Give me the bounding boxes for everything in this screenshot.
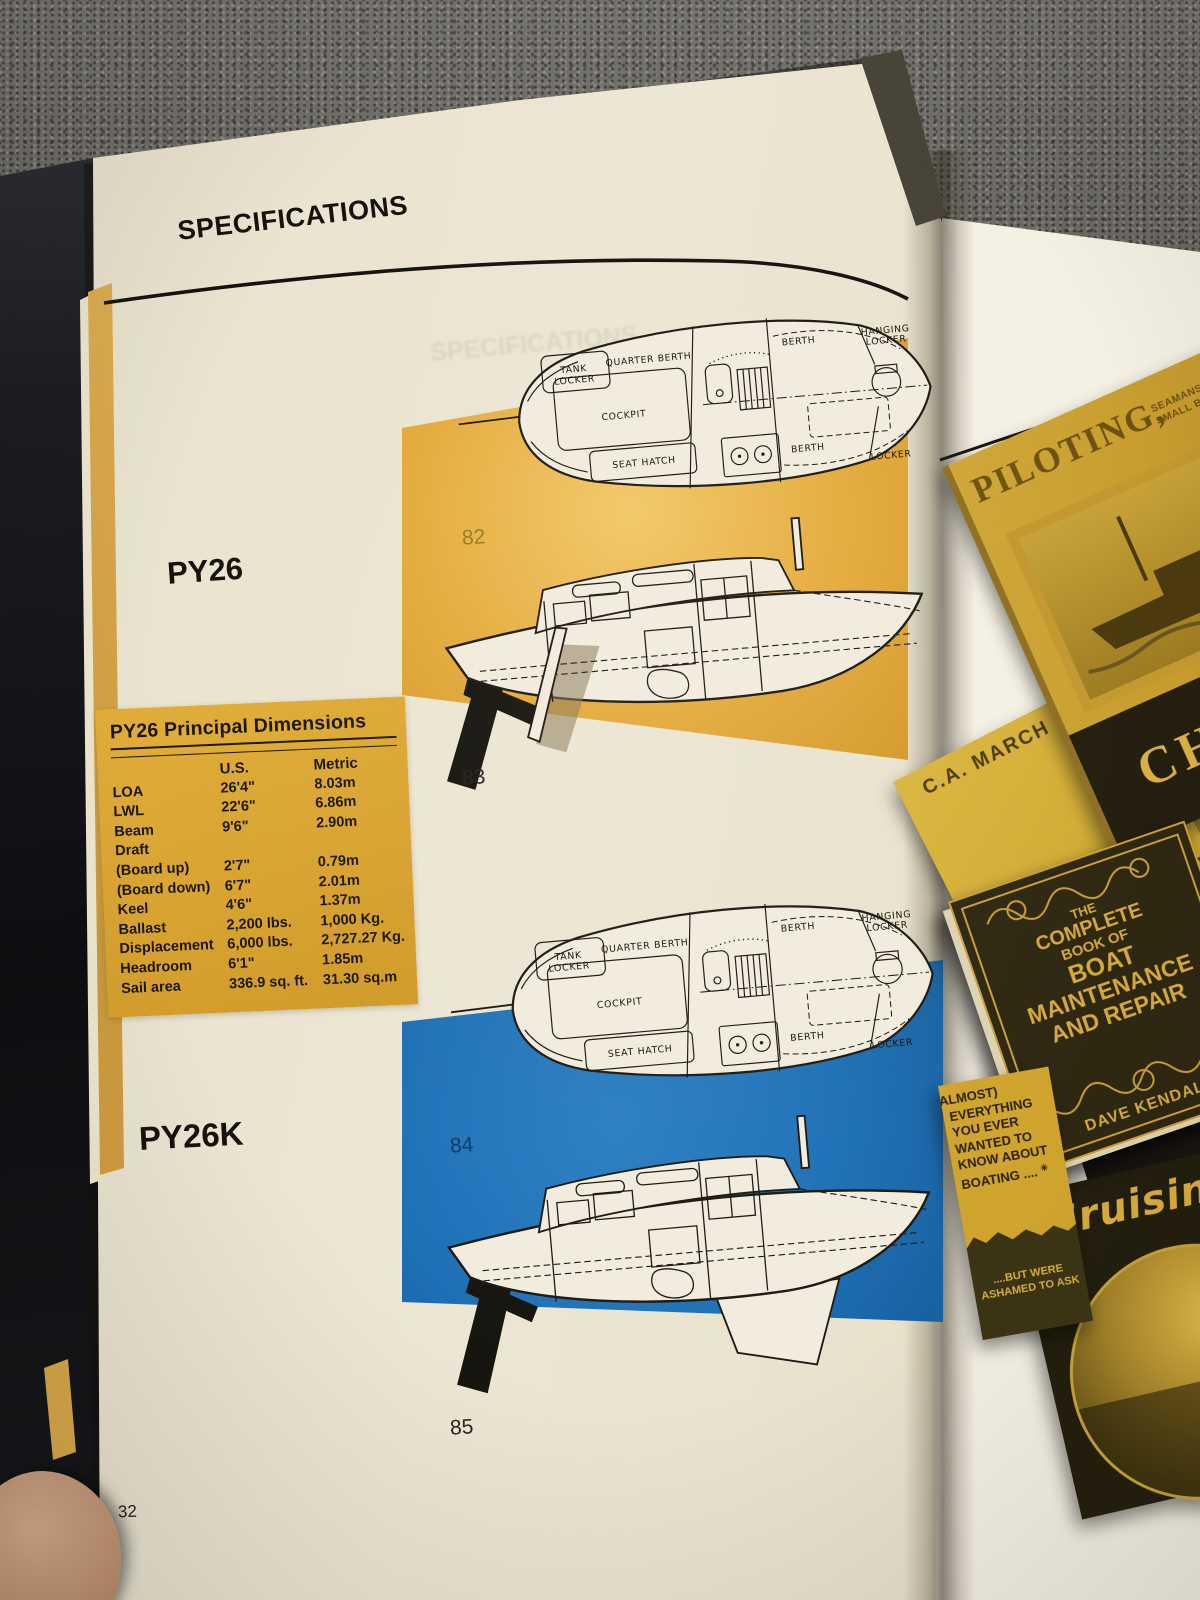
figure-number-84: 84 (449, 1133, 474, 1159)
mast-post (791, 518, 803, 570)
figure-number-83: 83 (461, 765, 486, 791)
star-ornament: ✳ (1040, 1162, 1049, 1173)
pamphlet-title: (ALMOST) EVERYTHING YOU EVER WANTED TO K… (945, 1077, 1052, 1193)
figure-number-82: 82 (461, 525, 486, 551)
pamphlet-dark-section: ....BUT WERE ASHAMED TO ASK (964, 1214, 1093, 1340)
mast-post (797, 1116, 809, 1168)
py26k-side-view-diagram (412, 1101, 954, 1415)
model-label-py26: PY26 (166, 551, 244, 592)
label-locker: LOCKER (870, 448, 912, 463)
principal-dimensions-table: PY26 Principal Dimensions U.S. Metric LO… (95, 696, 418, 1017)
model-label-py26k: PY26K (138, 1115, 244, 1158)
page-number: 32 (118, 1502, 138, 1523)
pamphlet-tagline: ....BUT WERE ASHAMED TO ASK (972, 1258, 1087, 1305)
py26-side-view-diagram (410, 503, 946, 814)
figure-number-85: 85 (449, 1415, 474, 1441)
photo-horizon (1078, 1353, 1200, 1521)
photo-of-open-book: SPECIFICATIONS SPECIFICATIONS PY26 TANK (0, 0, 1200, 1600)
